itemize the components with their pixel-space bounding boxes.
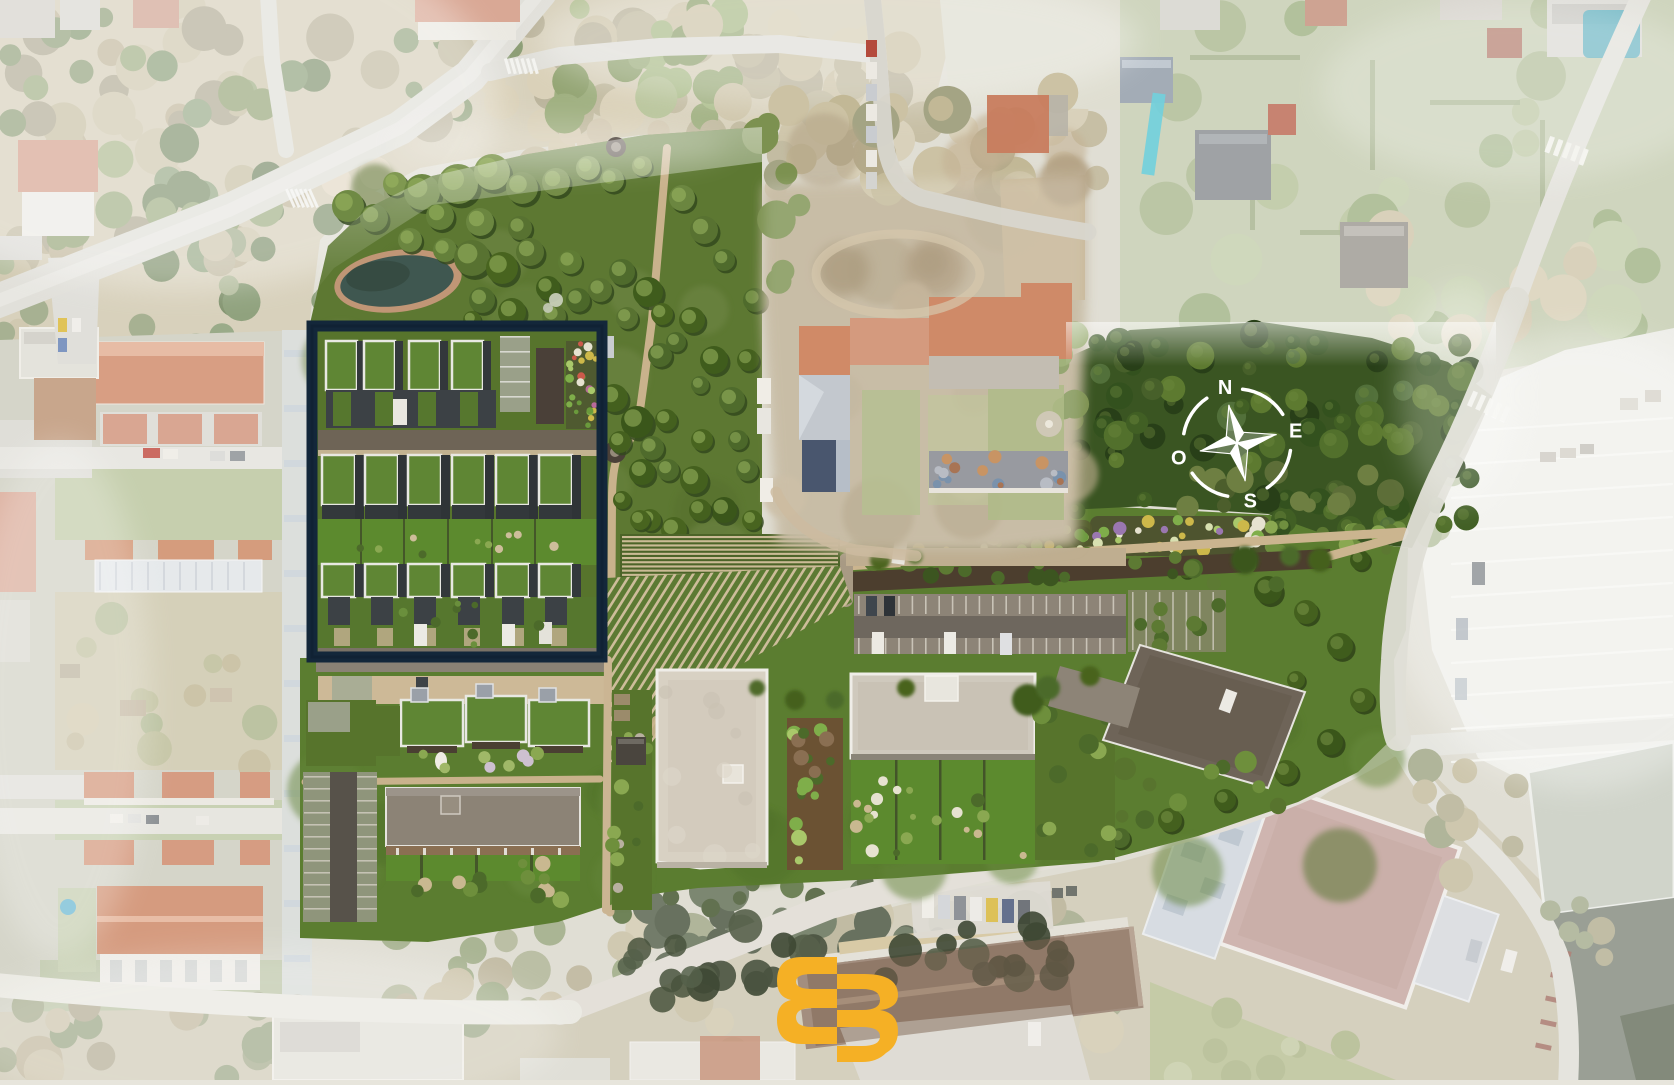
svg-text:S: S [1244,491,1257,513]
svg-text:O: O [1171,448,1187,470]
svg-text:N: N [1218,377,1232,399]
svg-text:E: E [1289,421,1302,443]
